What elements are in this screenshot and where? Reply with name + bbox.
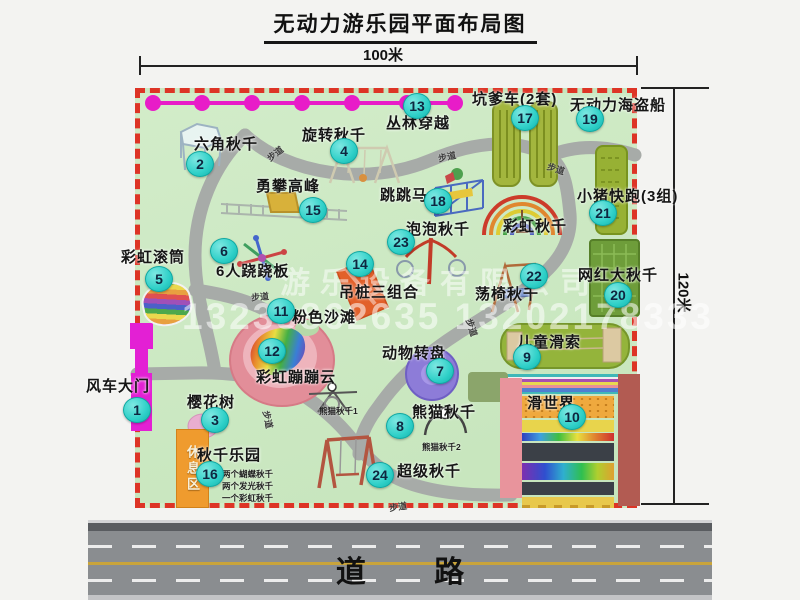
slide-world-dark-band-2	[522, 482, 614, 495]
attraction-badge-4: 4	[330, 138, 358, 164]
attraction-badge-15: 15	[299, 197, 327, 223]
road-edge-top	[88, 523, 712, 531]
walkway-label-7: 步道	[388, 499, 408, 514]
attraction-badge-18: 18	[424, 188, 452, 214]
attraction-sublabel-8-1: 熊猫秋千1	[319, 405, 358, 417]
dimension-top-tick-left	[139, 56, 141, 75]
attraction-label-8: 熊猫秋千	[412, 401, 476, 422]
attraction-badge-16: 16	[196, 461, 224, 487]
attraction-sublabel-16-2: 两个发光秋千	[222, 480, 273, 492]
walkway-label-4: 步道	[250, 289, 269, 304]
attraction-badge-8: 8	[386, 413, 414, 439]
attraction-badge-21: 21	[589, 200, 617, 226]
attraction-badge-12: 12	[258, 338, 286, 364]
attraction-badge-9: 9	[513, 344, 541, 370]
attraction-badge-14: 14	[346, 251, 374, 277]
attraction-badge-19: 19	[576, 106, 604, 132]
attraction-label-12: 彩虹蹦蹦云	[256, 366, 336, 387]
attraction-label-1: 风车大门	[86, 375, 150, 396]
page-title: 无动力游乐园平面布局图	[0, 8, 800, 44]
slide-world-rainbow-band-2	[522, 463, 614, 480]
dimension-top-tick-right	[636, 56, 638, 75]
attraction-badge-5: 5	[145, 266, 173, 292]
dimension-right-tick-bottom	[641, 503, 709, 505]
attraction-badge-23: 23	[387, 229, 415, 255]
road-edge-bottom	[88, 595, 712, 600]
attraction-label-15: 勇攀高峰	[256, 175, 320, 196]
climbing-peak-icon	[221, 193, 347, 220]
dimension-top-line	[140, 65, 637, 67]
attraction-label-18: 跳跳马	[380, 184, 428, 205]
attraction-label-rainbow-swing: 彩虹秋千	[503, 215, 567, 236]
attraction-badge-2: 2	[186, 151, 214, 177]
road-label: 道 路	[88, 547, 712, 591]
attraction-badge-1: 1	[123, 397, 151, 423]
page-title-text: 无动力游乐园平面布局图	[264, 8, 537, 44]
slide-world-dark-band-1	[522, 443, 614, 461]
dimension-right-label: 120米	[674, 272, 695, 312]
slide-world-rainbow-band-1	[522, 433, 614, 441]
attraction-badge-10: 10	[558, 404, 586, 430]
attraction-sublabel-16-3: 一个彩虹秋千	[222, 492, 273, 504]
attraction-badge-3: 3	[201, 407, 229, 433]
attraction-label-14: 吊桩三组合	[339, 281, 419, 302]
slide-world-wave-band	[522, 497, 614, 508]
dimension-right-tick-top	[641, 87, 709, 89]
attraction-badge-6: 6	[210, 238, 238, 264]
attraction-label-11: 粉色沙滩	[292, 306, 356, 327]
slide-world-red-strip	[618, 374, 640, 506]
dimension-top-label: 100米	[363, 44, 403, 65]
attraction-sublabel-8-2: 熊猫秋千2	[422, 441, 461, 453]
attraction-badge-7: 7	[426, 358, 454, 384]
attraction-label-17: 坑爹车(2套)	[472, 88, 557, 109]
attraction-label-24: 超级秋千	[397, 460, 461, 481]
attraction-label-5: 彩虹滚筒	[121, 246, 185, 267]
attraction-badge-20: 20	[604, 282, 632, 308]
park-plan-page: 无动力游乐园平面布局图 100米 120米	[0, 0, 800, 600]
slide-world-pink-strip	[500, 378, 522, 498]
attraction-badge-22: 22	[520, 263, 548, 289]
road: 道 路	[88, 520, 712, 600]
attraction-badge-24: 24	[366, 462, 394, 488]
attraction-badge-13: 13	[403, 93, 431, 119]
attraction-badge-11: 11	[267, 298, 295, 324]
attraction-badge-17: 17	[511, 105, 539, 131]
attraction-label-23: 泡泡秋千	[406, 218, 470, 239]
attraction-sublabel-16-1: 两个蝴蝶秋千	[222, 468, 273, 480]
